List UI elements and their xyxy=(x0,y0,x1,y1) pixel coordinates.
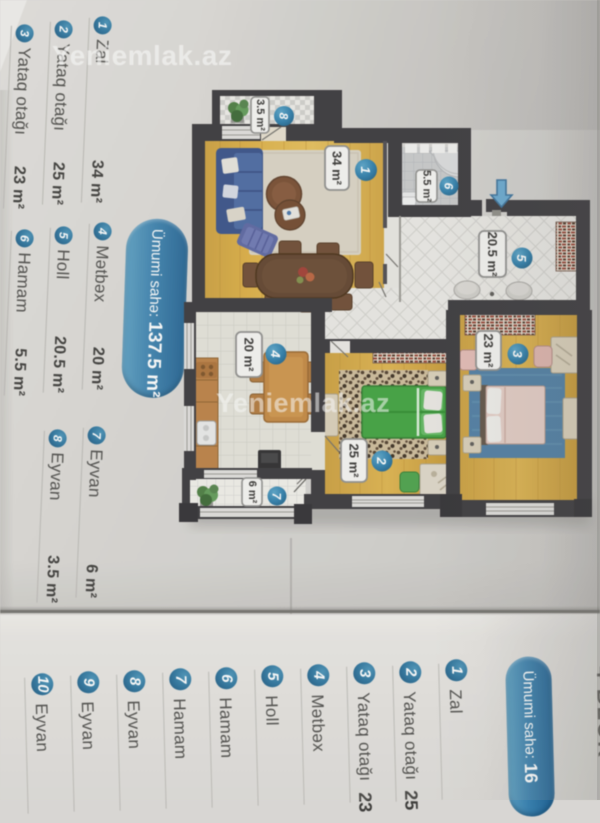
svg-text:25 m²: 25 m² xyxy=(347,444,362,479)
svg-text:3: 3 xyxy=(510,350,525,358)
svg-text:6: 6 xyxy=(442,183,456,190)
svg-text:3.5 m²: 3.5 m² xyxy=(254,99,266,131)
svg-text:20 m²: 20 m² xyxy=(242,338,257,373)
svg-text:5.5 m²: 5.5 m² xyxy=(421,170,433,202)
svg-text:6 m²: 6 m² xyxy=(246,481,258,504)
svg-text:2: 2 xyxy=(374,456,389,465)
svg-text:23 m²: 23 m² xyxy=(481,334,496,369)
svg-text:8: 8 xyxy=(277,113,291,120)
svg-text:34 m²: 34 m² xyxy=(330,151,345,186)
svg-text:1: 1 xyxy=(358,166,373,173)
svg-text:20.5 m²: 20.5 m² xyxy=(485,232,500,277)
svg-text:4: 4 xyxy=(268,349,283,358)
svg-text:5: 5 xyxy=(514,254,529,262)
